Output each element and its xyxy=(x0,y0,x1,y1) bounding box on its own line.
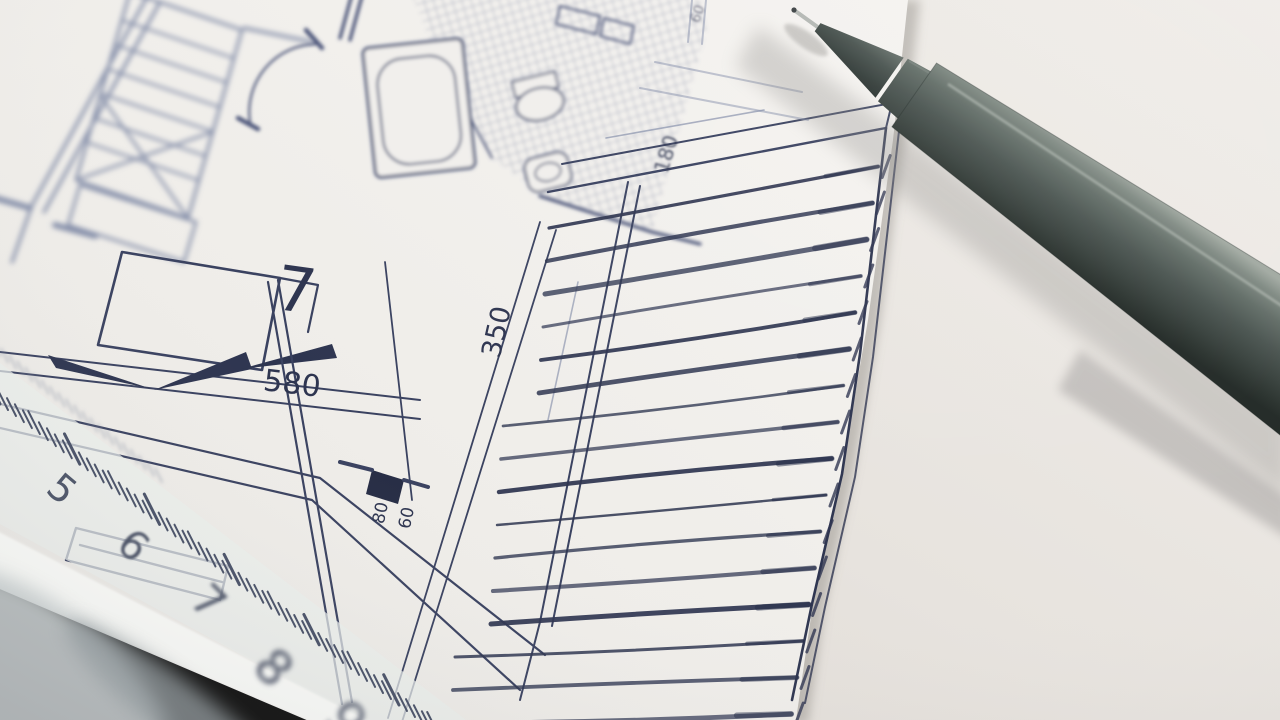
blueprint-desk-photo: 7 580 350 80 60 180 60 5 xyxy=(0,0,1280,720)
lighting-vignette xyxy=(0,0,1280,720)
